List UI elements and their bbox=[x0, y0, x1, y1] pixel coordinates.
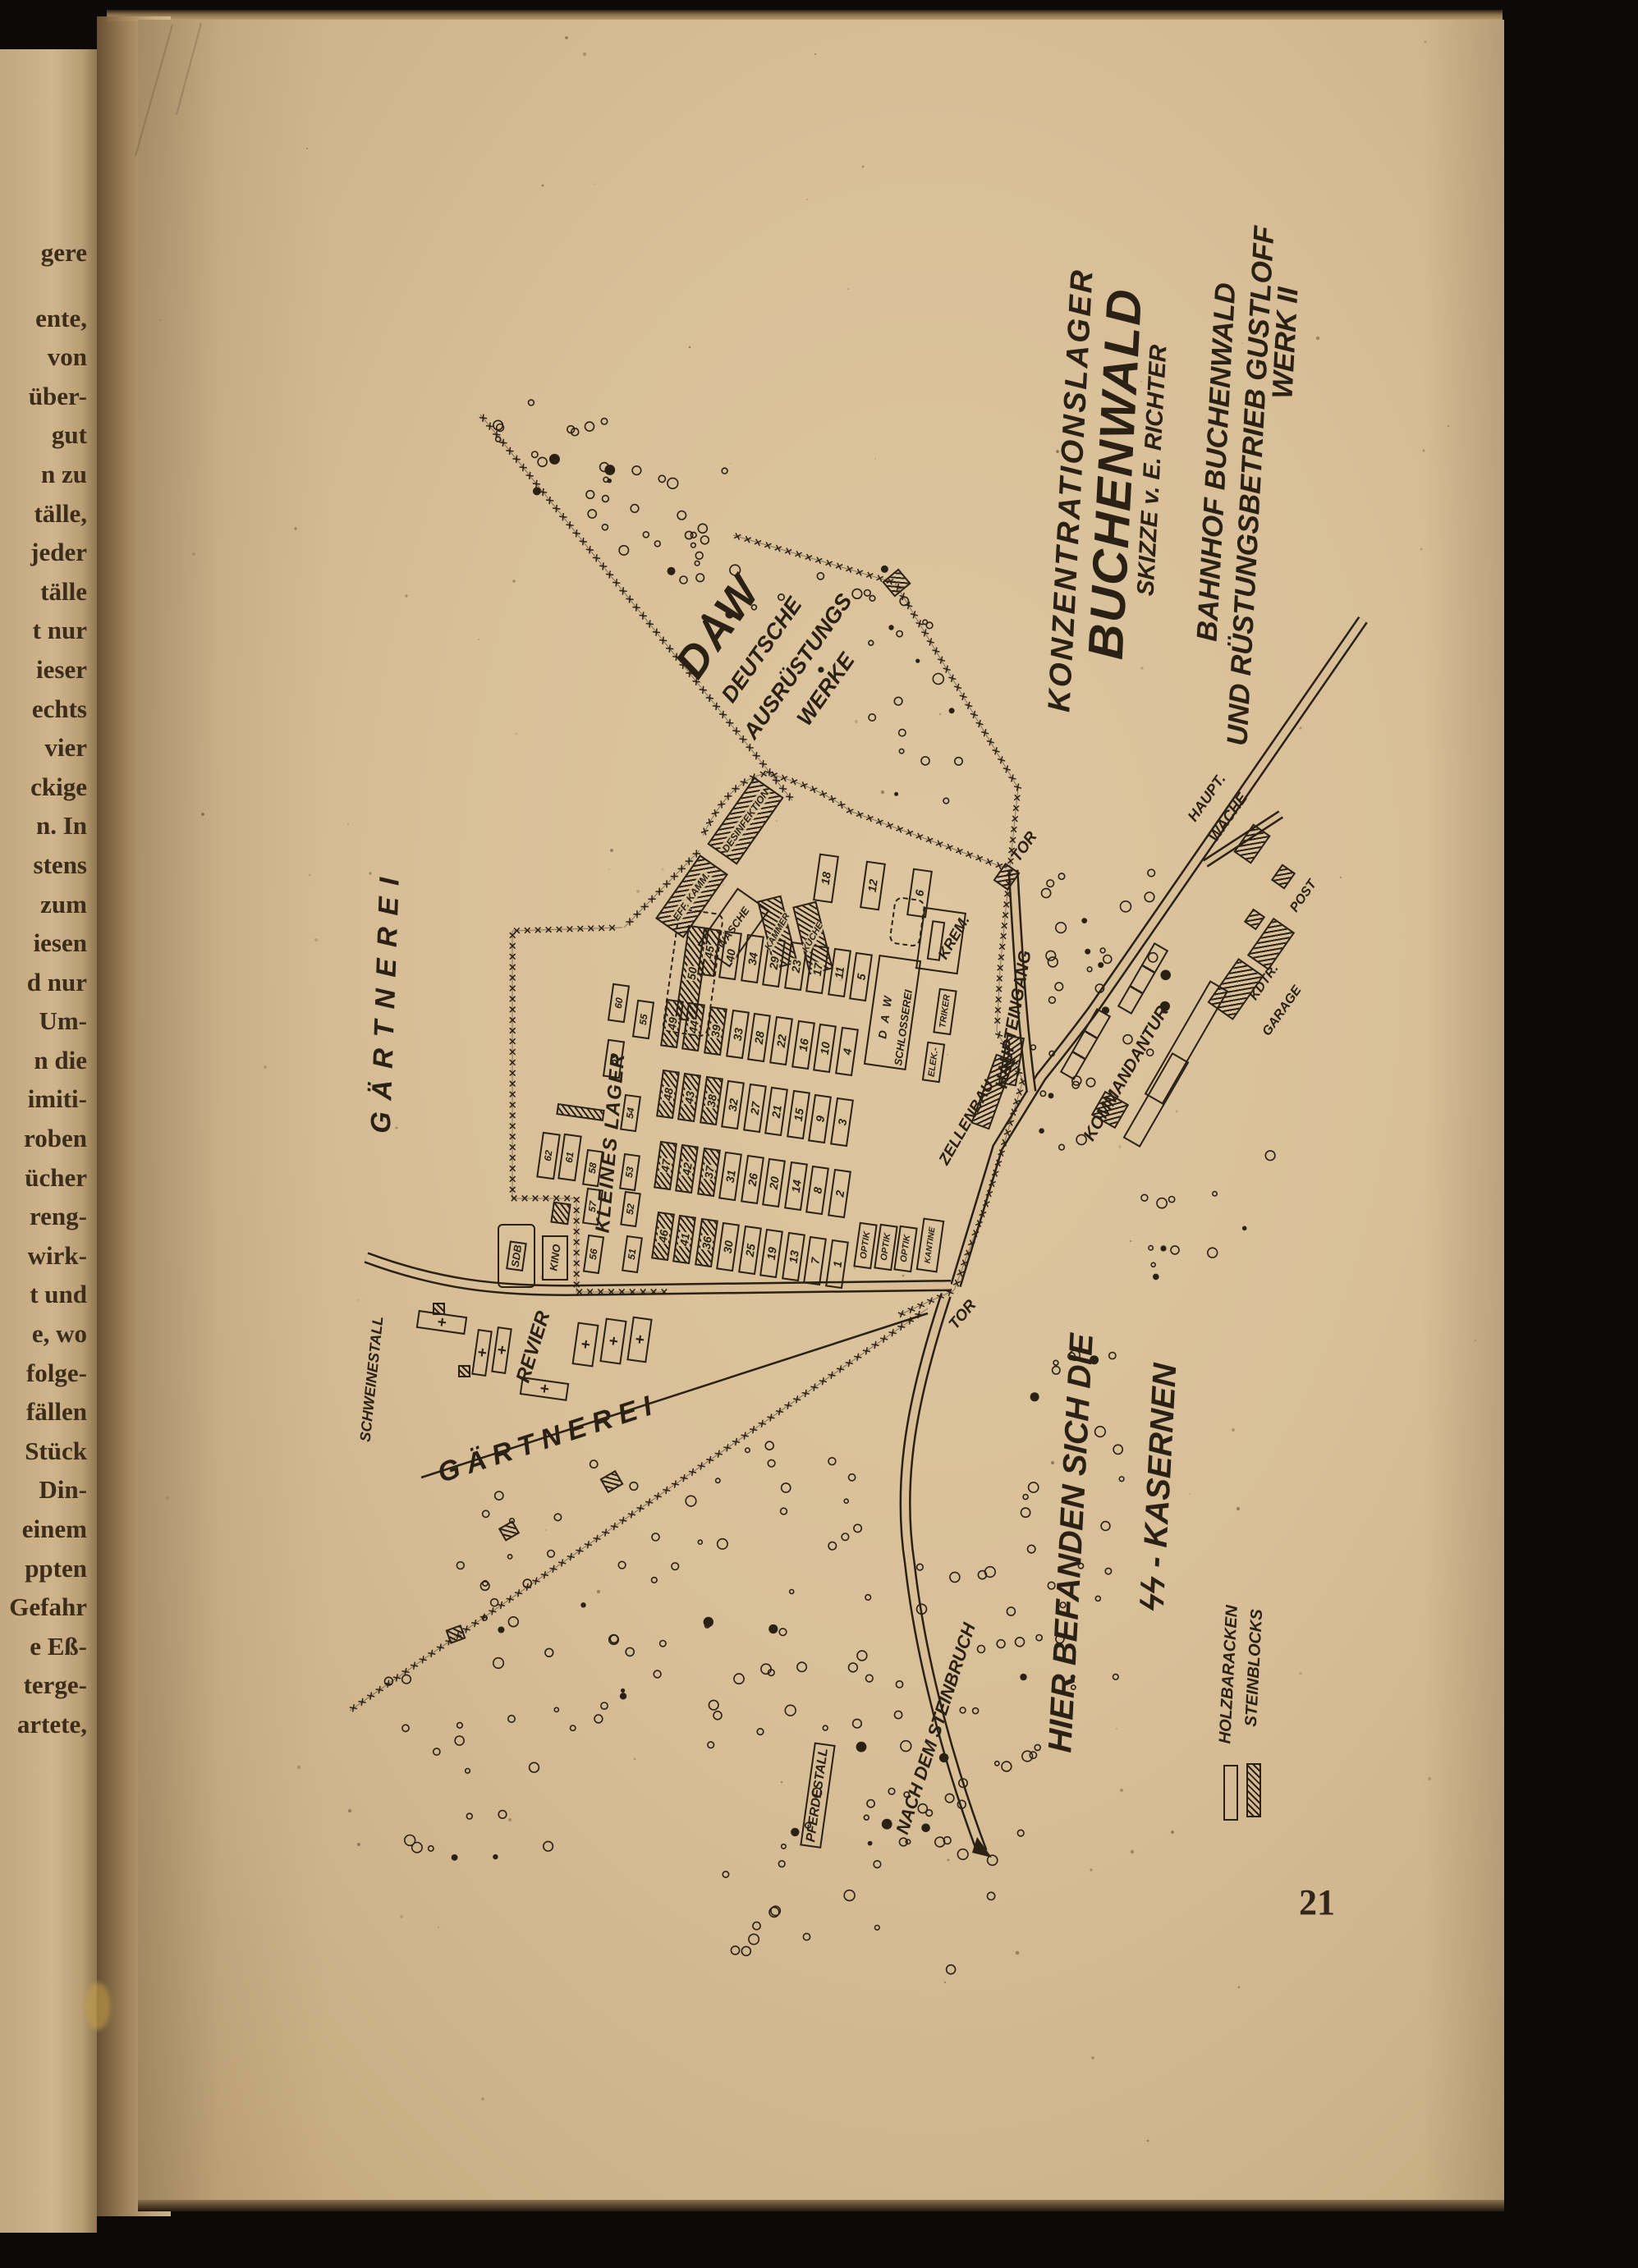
tree-icon bbox=[1039, 1128, 1044, 1134]
tree-icon bbox=[955, 758, 962, 765]
tree-icon bbox=[713, 1711, 722, 1720]
tree-icon bbox=[695, 561, 700, 566]
paper-speck bbox=[944, 1982, 946, 1983]
tree-icon bbox=[867, 1800, 874, 1808]
tree-icon bbox=[607, 479, 612, 483]
svg-text:××××××××××××××××××××××××××××××: ××××××××××××××××××××××××××××××××××××××××… bbox=[0, 0, 704, 930]
paper-speck bbox=[348, 1809, 351, 1812]
paper-speck bbox=[947, 1859, 950, 1862]
tree-icon bbox=[590, 1460, 598, 1468]
tree-icon bbox=[874, 1861, 881, 1868]
tree-icon bbox=[704, 1617, 713, 1627]
paper-speck bbox=[881, 790, 884, 794]
tree-icon bbox=[1016, 1638, 1025, 1647]
tree-icon bbox=[643, 532, 649, 538]
tree-icon bbox=[1030, 1752, 1036, 1758]
paper-speck bbox=[583, 53, 586, 56]
paper-speck bbox=[512, 580, 516, 583]
tree-icon bbox=[405, 1835, 415, 1846]
tree-icon bbox=[757, 1729, 764, 1735]
tree-icon bbox=[680, 576, 687, 584]
paper-speck bbox=[1140, 667, 1143, 669]
tree-icon bbox=[508, 1555, 512, 1559]
tree-icon bbox=[1046, 951, 1056, 960]
paper-speck bbox=[1090, 1869, 1093, 1872]
tree-icon bbox=[718, 1539, 727, 1549]
tree-icon bbox=[658, 475, 665, 482]
tree-icon bbox=[1119, 1477, 1124, 1482]
paper-speck bbox=[1131, 1850, 1134, 1853]
tree-icon bbox=[978, 1646, 985, 1653]
tree-icon bbox=[1086, 1078, 1094, 1086]
paper-speck bbox=[902, 1275, 905, 1277]
tree-icon bbox=[1145, 892, 1154, 902]
tree-icon bbox=[686, 1496, 696, 1506]
tree-icon bbox=[1023, 1495, 1028, 1500]
tree-icon bbox=[1153, 1274, 1159, 1281]
tree-icon bbox=[779, 1629, 787, 1636]
tree-icon bbox=[943, 798, 949, 804]
tree-icon bbox=[508, 1617, 518, 1627]
paper-speck bbox=[1448, 425, 1449, 427]
paper-speck bbox=[1340, 877, 1342, 878]
tree-icon bbox=[434, 1748, 440, 1755]
tree-icon bbox=[995, 1762, 999, 1766]
tree-icon bbox=[1151, 1262, 1155, 1267]
paper-speck bbox=[847, 288, 849, 290]
paper-speck bbox=[814, 53, 816, 55]
tree-icon bbox=[498, 1627, 504, 1633]
tree-icon bbox=[988, 1892, 995, 1899]
tree-icon bbox=[620, 1693, 626, 1699]
revier-hatched-hut bbox=[433, 1303, 445, 1315]
tree-icon bbox=[580, 1602, 585, 1607]
paper-speck bbox=[1118, 1145, 1122, 1148]
tree-icon bbox=[1040, 1091, 1045, 1096]
tree-icon bbox=[926, 1810, 933, 1817]
svg-text:××××××××××××××××××××××××××××××: ××××××××××××××××××××××××××××××××××××××××… bbox=[0, 0, 1016, 1027]
tree-icon bbox=[1098, 962, 1103, 968]
paper-speck bbox=[306, 148, 308, 149]
tree-icon bbox=[1007, 1607, 1015, 1615]
paper-speck bbox=[508, 1818, 512, 1821]
tree-icon bbox=[849, 1474, 856, 1481]
tree-icon bbox=[708, 1742, 714, 1748]
paper-speck bbox=[1130, 1240, 1131, 1242]
tree-icon bbox=[621, 1688, 625, 1693]
tree-icon bbox=[1058, 873, 1064, 879]
tree-icon bbox=[1047, 880, 1054, 887]
paper-speck bbox=[855, 720, 858, 723]
tree-icon bbox=[782, 1844, 786, 1849]
tree-icon bbox=[939, 1753, 948, 1762]
tree-icon bbox=[1242, 1226, 1247, 1231]
tree-icon bbox=[1113, 1675, 1119, 1680]
tree-icon bbox=[1160, 1245, 1166, 1251]
tree-icon bbox=[866, 1675, 874, 1682]
paper-speck bbox=[806, 199, 808, 200]
tree-icon bbox=[852, 589, 862, 599]
tree-icon bbox=[734, 1674, 744, 1684]
legend-steinblocks-swatch bbox=[1246, 1763, 1261, 1817]
paper-speck bbox=[264, 1065, 266, 1068]
tree-icon bbox=[601, 1702, 608, 1709]
tree-icon bbox=[1053, 1360, 1058, 1365]
paper-speck bbox=[478, 639, 479, 640]
tree-icon bbox=[1030, 1392, 1039, 1401]
tree-icon bbox=[894, 792, 898, 796]
paper-speck bbox=[545, 1529, 547, 1531]
tree-icon bbox=[854, 1524, 861, 1532]
tree-icon bbox=[853, 1719, 862, 1728]
tree-icon bbox=[1021, 1508, 1030, 1517]
tree-icon bbox=[1095, 1427, 1106, 1437]
tree-icon bbox=[571, 1725, 576, 1730]
tree-icon bbox=[921, 1824, 930, 1833]
tree-icon bbox=[741, 1946, 750, 1955]
tree-icon bbox=[888, 1789, 895, 1795]
paper-speck bbox=[1475, 1340, 1477, 1342]
tree-icon bbox=[769, 1624, 778, 1633]
tree-icon bbox=[778, 1861, 785, 1867]
tree-icon bbox=[538, 457, 547, 466]
tree-icon bbox=[1213, 1192, 1217, 1196]
tree-icon bbox=[698, 1540, 702, 1544]
paper-speck bbox=[776, 820, 778, 822]
tree-icon bbox=[626, 1647, 634, 1656]
tree-icon bbox=[1160, 970, 1171, 981]
paper-speck bbox=[542, 185, 544, 187]
paper-speck bbox=[862, 166, 865, 168]
paper-speck bbox=[1300, 727, 1302, 730]
paper-speck bbox=[1300, 1673, 1302, 1675]
tree-icon bbox=[466, 1813, 472, 1819]
tree-icon bbox=[988, 1855, 998, 1865]
tree-icon bbox=[1017, 1830, 1024, 1836]
tree-icon bbox=[817, 573, 824, 580]
paper-speck bbox=[1428, 1777, 1431, 1780]
tree-icon bbox=[530, 1762, 539, 1772]
tree-icon bbox=[588, 510, 596, 518]
tree-icon bbox=[508, 1716, 515, 1722]
tree-icon bbox=[602, 525, 608, 530]
tree-icon bbox=[585, 422, 594, 431]
tree-icon bbox=[498, 1811, 507, 1819]
paper-speck bbox=[358, 1299, 359, 1300]
tree-icon bbox=[668, 567, 676, 575]
tree-icon bbox=[549, 454, 560, 465]
tree-icon bbox=[791, 1828, 799, 1836]
paper-speck bbox=[854, 1267, 856, 1269]
paper-speck bbox=[857, 1748, 859, 1749]
tree-icon bbox=[533, 487, 541, 495]
paper-speck bbox=[874, 458, 875, 459]
tree-icon bbox=[660, 1641, 666, 1647]
paper-speck bbox=[1116, 1728, 1117, 1729]
tree-icon bbox=[746, 1448, 750, 1452]
tree-icon bbox=[1059, 1144, 1065, 1150]
tree-icon bbox=[594, 1715, 603, 1723]
tree-icon bbox=[402, 1725, 409, 1731]
paper-speck bbox=[400, 1915, 403, 1918]
tree-icon bbox=[677, 511, 686, 520]
tree-icon bbox=[1035, 1744, 1040, 1750]
tree-icon bbox=[1113, 1445, 1122, 1454]
tree-icon bbox=[888, 625, 893, 630]
tree-icon bbox=[803, 1933, 810, 1940]
paper-speck bbox=[597, 1590, 600, 1593]
paper-speck bbox=[636, 890, 640, 893]
tree-icon bbox=[842, 1533, 849, 1541]
tree-icon bbox=[844, 1499, 848, 1503]
tree-icon bbox=[1053, 1367, 1060, 1374]
tree-icon bbox=[1020, 1674, 1026, 1680]
tree-icon bbox=[701, 536, 709, 544]
tree-icon bbox=[466, 1769, 470, 1774]
tree-icon bbox=[957, 1849, 968, 1860]
tree-icon bbox=[1095, 1596, 1100, 1601]
tree-icon bbox=[1101, 1522, 1110, 1531]
paper-speck bbox=[1237, 1507, 1240, 1510]
tree-icon bbox=[1123, 1035, 1132, 1044]
tree-icon bbox=[630, 1482, 638, 1491]
tree-icon bbox=[882, 1819, 892, 1830]
tree-icon bbox=[604, 465, 615, 475]
tree-icon bbox=[457, 1723, 463, 1729]
tree-icon bbox=[1171, 1246, 1179, 1254]
legend-holzbaracken-swatch bbox=[1223, 1765, 1238, 1821]
tree-icon bbox=[1121, 901, 1131, 912]
tree-icon bbox=[960, 1707, 966, 1713]
tree-icon bbox=[698, 524, 707, 533]
paper-speck bbox=[357, 1843, 360, 1846]
paper-speck bbox=[781, 1781, 782, 1783]
tree-icon bbox=[654, 541, 660, 547]
tree-icon bbox=[632, 466, 641, 475]
tree-icon bbox=[455, 1736, 464, 1745]
tree-icon bbox=[828, 1458, 836, 1465]
paper-speck bbox=[1420, 548, 1423, 551]
paper-speck bbox=[309, 874, 311, 877]
paper-speck bbox=[201, 813, 204, 816]
paper-speck bbox=[565, 36, 568, 39]
tree-icon bbox=[749, 1934, 759, 1944]
tree-icon bbox=[1028, 1545, 1035, 1552]
tree-icon bbox=[768, 1459, 775, 1467]
tree-icon bbox=[652, 1578, 658, 1583]
tree-icon bbox=[933, 674, 943, 685]
paper-speck bbox=[369, 873, 372, 875]
tree-icon bbox=[869, 596, 875, 602]
tree-icon bbox=[868, 1841, 873, 1846]
paper-speck bbox=[1176, 1111, 1178, 1113]
tree-icon bbox=[1149, 1246, 1153, 1250]
tree-icon bbox=[865, 1595, 871, 1601]
paper-speck bbox=[1120, 1789, 1123, 1792]
tree-icon bbox=[997, 1640, 1005, 1648]
tree-icon bbox=[894, 697, 902, 705]
paper-speck bbox=[314, 938, 318, 942]
tree-icon bbox=[865, 590, 871, 597]
tree-icon bbox=[869, 640, 874, 645]
paper-speck bbox=[516, 733, 517, 735]
tree-icon bbox=[722, 468, 727, 474]
tree-icon bbox=[1036, 1635, 1042, 1641]
tree-icon bbox=[1055, 983, 1063, 991]
tree-icon bbox=[1049, 997, 1056, 1003]
tree-icon bbox=[1105, 1568, 1111, 1574]
tree-icon bbox=[654, 1670, 661, 1678]
tree-icon bbox=[695, 552, 703, 559]
paper-speck bbox=[594, 183, 596, 185]
paper-speck bbox=[347, 823, 349, 825]
tree-icon bbox=[691, 532, 696, 538]
tree-icon bbox=[545, 1648, 553, 1656]
tree-icon bbox=[897, 631, 902, 637]
tree-icon bbox=[619, 546, 628, 555]
tree-icon bbox=[672, 1563, 679, 1570]
tree-icon bbox=[790, 1590, 794, 1594]
tree-icon bbox=[554, 1514, 561, 1520]
tree-icon bbox=[881, 566, 888, 573]
tree-icon bbox=[1100, 948, 1105, 953]
svg-text:××××××××××××××××××××××××××××××: ××××××××××××××××××××××××××××××××××××××××… bbox=[0, 0, 670, 1299]
tree-icon bbox=[601, 419, 607, 424]
tree-icon bbox=[429, 1846, 434, 1851]
svg-text:××××××××××××××××××××××××××××××: ××××××××××××××××××××××××××××××××××××××××… bbox=[0, 0, 798, 806]
tree-icon bbox=[532, 451, 538, 457]
tree-icon bbox=[869, 714, 875, 721]
tree-icon bbox=[1109, 1352, 1116, 1359]
tree-icon bbox=[1169, 1197, 1175, 1203]
paper-speck bbox=[481, 2097, 484, 2101]
tree-icon bbox=[915, 659, 920, 663]
tree-icon bbox=[781, 1508, 787, 1514]
paper-speck bbox=[438, 1927, 439, 1928]
tree-icon bbox=[731, 1946, 739, 1954]
paper-speck bbox=[689, 346, 691, 348]
map-caption-line3: WERK II bbox=[1266, 286, 1305, 400]
paper-speck bbox=[1091, 2056, 1094, 2059]
paper-speck bbox=[730, 463, 732, 465]
tree-icon bbox=[785, 1705, 796, 1716]
tree-icon bbox=[1208, 1248, 1218, 1258]
paper-speck bbox=[1051, 1461, 1054, 1464]
tree-icon bbox=[493, 1854, 498, 1859]
tree-icon bbox=[856, 1742, 867, 1753]
paper-speck bbox=[166, 1496, 169, 1500]
paper-speck bbox=[1316, 337, 1320, 341]
page-number: 21 bbox=[1299, 1881, 1335, 1923]
tree-icon bbox=[457, 1562, 464, 1569]
tree-icon bbox=[483, 1510, 489, 1517]
tree-icon bbox=[1029, 1482, 1039, 1492]
paper-speck bbox=[1171, 1830, 1174, 1834]
tree-icon bbox=[618, 1561, 626, 1569]
tree-icon bbox=[652, 1533, 659, 1541]
tree-icon bbox=[1048, 957, 1058, 967]
tree-icon bbox=[1056, 923, 1067, 933]
tree-icon bbox=[723, 1872, 728, 1877]
tree-icon bbox=[1002, 1762, 1012, 1771]
paper-creases bbox=[135, 23, 201, 156]
paper-speck bbox=[297, 1766, 301, 1769]
paper-speck bbox=[1238, 1986, 1240, 1988]
tree-icon bbox=[1148, 869, 1155, 877]
tree-icon bbox=[973, 1708, 979, 1714]
tree-icon bbox=[797, 1662, 806, 1671]
paper-speck bbox=[405, 594, 407, 597]
tree-icon bbox=[529, 400, 535, 405]
paper-speck bbox=[608, 868, 609, 869]
tree-icon bbox=[1081, 918, 1087, 923]
paper-speck bbox=[1016, 1951, 1020, 1955]
paper-speck bbox=[1425, 41, 1427, 44]
tree-icon bbox=[668, 478, 678, 488]
tree-icon bbox=[1031, 1045, 1036, 1050]
tree-icon bbox=[899, 749, 903, 753]
tree-icon bbox=[947, 1965, 956, 1974]
tree-icon bbox=[554, 1707, 558, 1711]
tree-icon bbox=[949, 708, 955, 713]
svg-text:××××××××××××××××××××××××××××××: ××××××××××××××××××××××××××××××××××××××××… bbox=[0, 0, 1025, 868]
paper-speck bbox=[159, 319, 161, 321]
tree-icon bbox=[857, 1651, 867, 1661]
tree-icon bbox=[548, 1551, 555, 1558]
tree-icon bbox=[849, 1663, 858, 1672]
tree-icon bbox=[761, 1664, 771, 1674]
tree-icon bbox=[709, 1700, 718, 1710]
kleines-lager-hatched-small bbox=[550, 1202, 571, 1226]
paper-speck bbox=[1147, 2140, 1149, 2142]
tree-icon bbox=[493, 1658, 504, 1669]
tree-icon bbox=[945, 1794, 953, 1802]
tree-icon bbox=[875, 1926, 880, 1931]
tree-icon bbox=[1087, 967, 1092, 972]
paper-speck bbox=[294, 527, 296, 529]
tree-icon bbox=[895, 1711, 902, 1719]
tree-icon bbox=[452, 1854, 458, 1861]
tree-icon bbox=[696, 574, 704, 582]
tree-icon bbox=[921, 757, 929, 765]
tree-icon bbox=[1157, 1198, 1167, 1208]
paper-speck bbox=[723, 884, 724, 886]
tree-icon bbox=[823, 1725, 828, 1730]
tree-icon bbox=[828, 1542, 836, 1550]
tree-icon bbox=[899, 729, 906, 735]
tree-icon bbox=[1141, 1194, 1148, 1201]
tree-icon bbox=[603, 496, 609, 502]
tree-icon bbox=[917, 1564, 924, 1570]
tree-icon bbox=[782, 1483, 791, 1492]
paper-speck bbox=[1423, 450, 1425, 452]
tree-icon bbox=[765, 1441, 773, 1450]
paper-speck bbox=[610, 849, 613, 852]
tree-icon bbox=[935, 1837, 945, 1847]
tree-icon bbox=[691, 543, 696, 548]
tree-icon bbox=[716, 1478, 720, 1482]
tree-icon bbox=[1103, 955, 1112, 964]
tree-icon bbox=[631, 505, 639, 513]
tree-icon bbox=[1085, 949, 1090, 955]
tree-icon bbox=[544, 1841, 553, 1851]
tree-icon bbox=[844, 1890, 855, 1901]
paper-speck bbox=[947, 1054, 948, 1056]
paper-speck bbox=[192, 552, 195, 556]
tree-icon bbox=[495, 1491, 503, 1500]
tree-icon bbox=[1042, 888, 1051, 897]
tree-icon bbox=[1265, 1151, 1275, 1161]
